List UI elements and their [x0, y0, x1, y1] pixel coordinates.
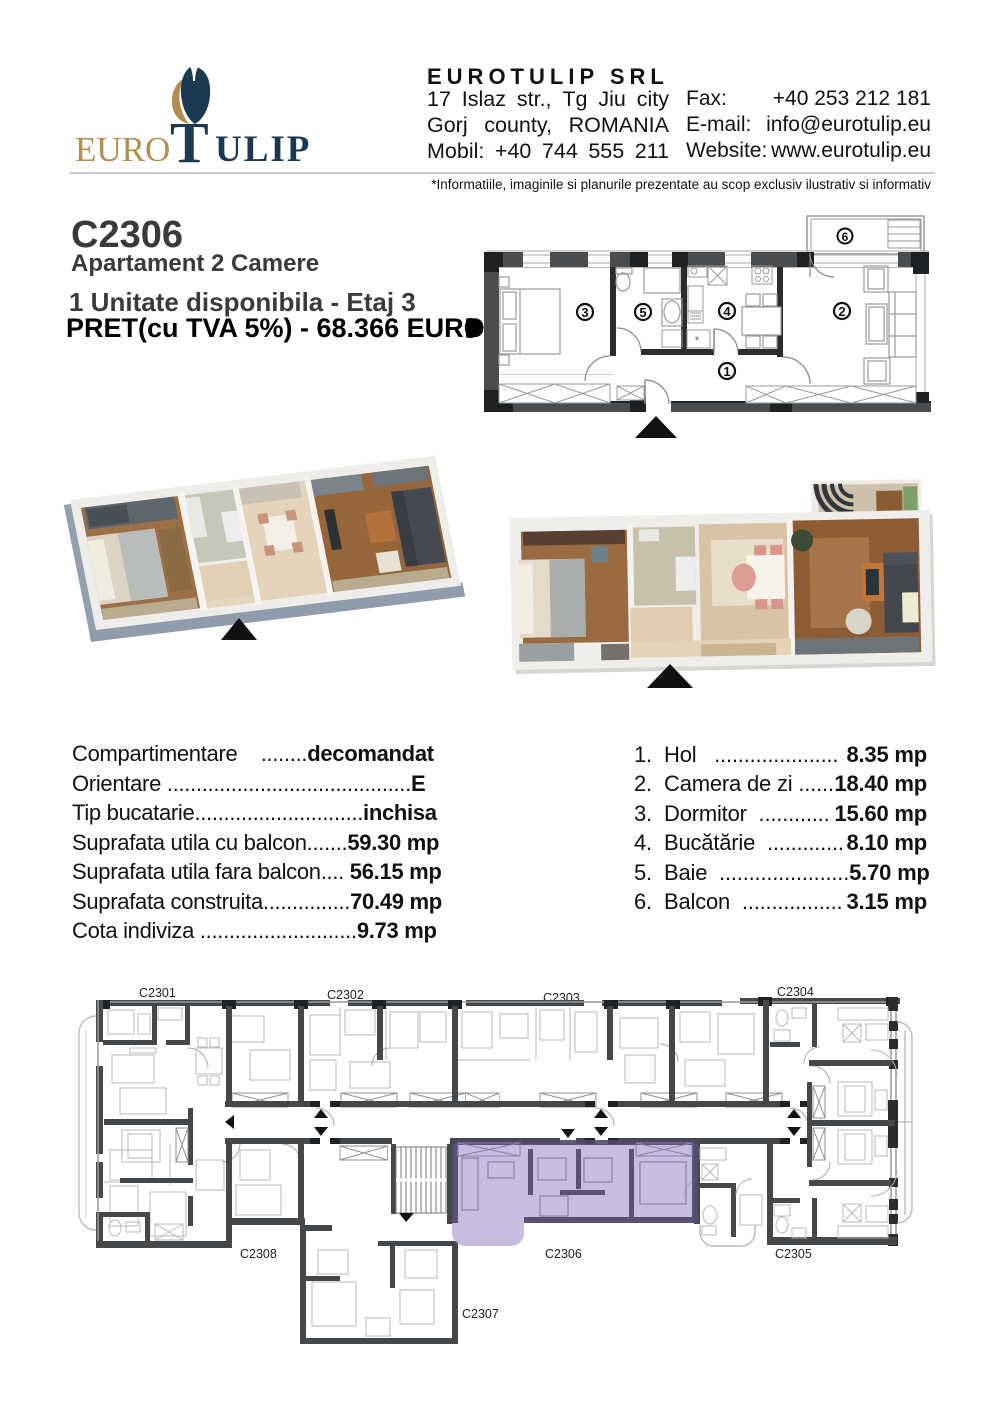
svg-text:C2306: C2306 [545, 1247, 582, 1261]
svg-text:3: 3 [581, 305, 588, 320]
svg-text:C2301: C2301 [139, 986, 176, 1000]
svg-text:2: 2 [838, 304, 845, 319]
svg-text:1: 1 [723, 364, 730, 379]
svg-text:C2304: C2304 [777, 985, 814, 999]
svg-text:C2305: C2305 [775, 1247, 812, 1261]
svg-text:C2302: C2302 [327, 988, 364, 1002]
svg-text:EURO: EURO [75, 130, 170, 167]
svg-text:ULIP: ULIP [215, 129, 311, 167]
svg-text:C2307: C2307 [462, 1307, 499, 1321]
svg-text:*: * [696, 337, 699, 344]
svg-text:6: 6 [842, 230, 849, 244]
svg-text:4: 4 [723, 304, 731, 319]
svg-text:T: T [170, 110, 209, 167]
svg-text:C2308: C2308 [240, 1247, 277, 1261]
svg-text:5: 5 [639, 305, 646, 320]
